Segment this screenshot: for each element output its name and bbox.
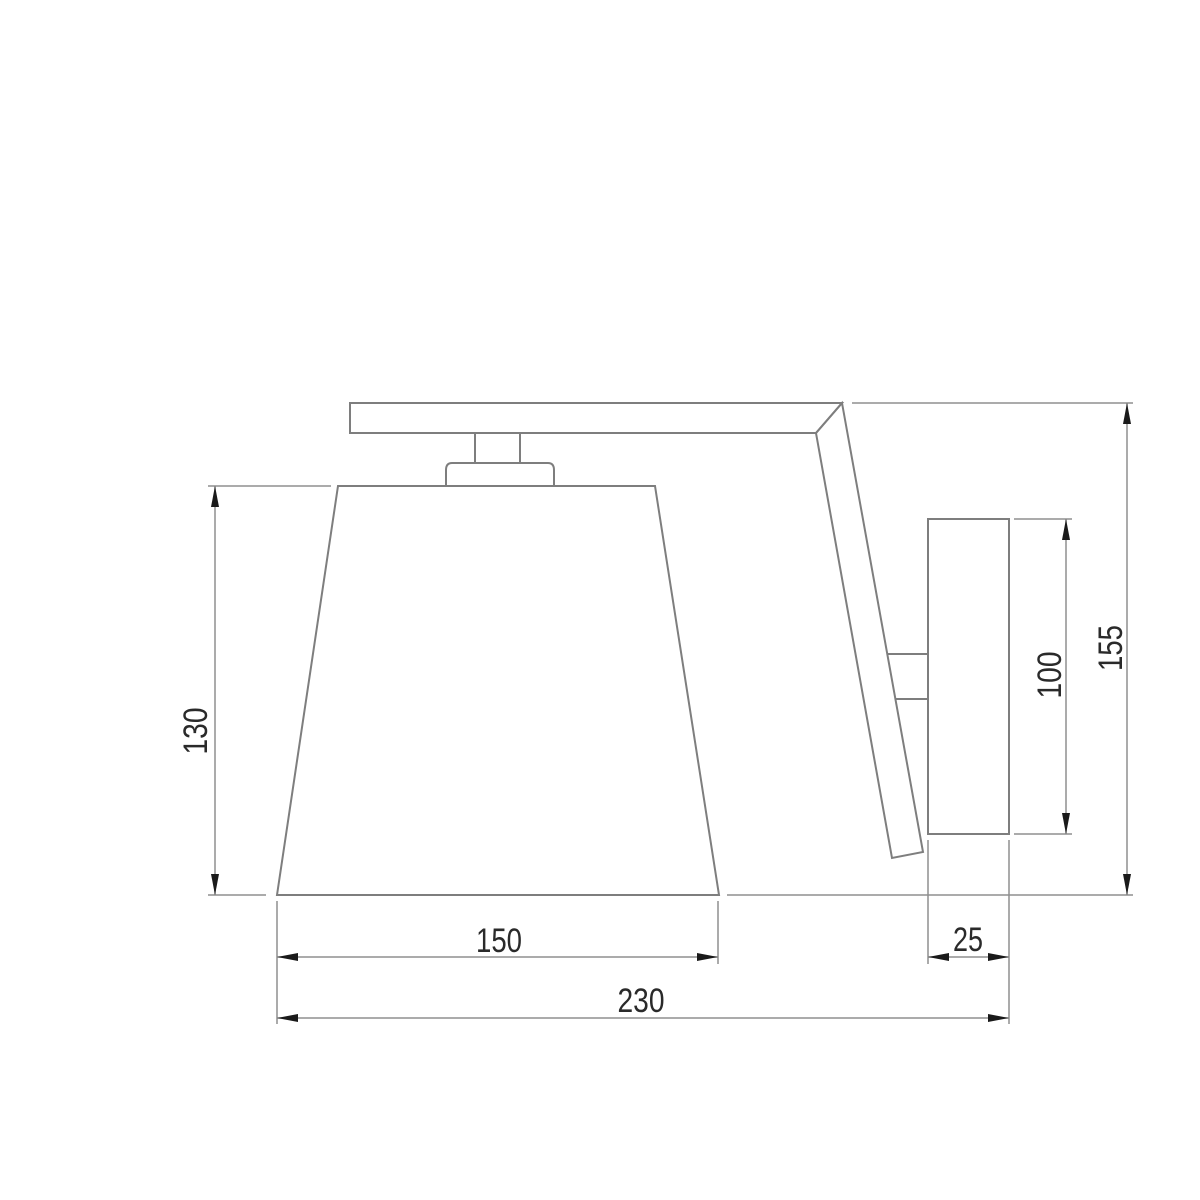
arrow-overall-height-bottom xyxy=(1123,874,1131,895)
drawing-canvas: 130 150 230 25 100 155 xyxy=(0,0,1200,1200)
extension-lines xyxy=(208,403,1133,1024)
sconce-outline-group xyxy=(277,403,1009,895)
dimension-labels-group: 130 150 230 25 100 155 xyxy=(177,625,1130,1020)
dim-label-shade-height: 130 xyxy=(177,708,215,755)
arrow-plate-height-top xyxy=(1062,519,1070,540)
arrow-shade-height-bottom xyxy=(211,874,219,895)
lampshade xyxy=(277,486,719,895)
dim-label-overall-width: 230 xyxy=(618,982,665,1020)
shade-fitting xyxy=(446,463,554,487)
support-arm xyxy=(816,403,923,858)
extension-lines-group xyxy=(208,403,1133,1024)
dim-label-plate-height: 100 xyxy=(1031,652,1069,699)
arrow-overall-height-top xyxy=(1123,403,1131,424)
arrow-plate-height-bottom xyxy=(1062,813,1070,834)
arrow-overall-width-right xyxy=(988,1014,1009,1022)
dim-label-shade-width: 150 xyxy=(476,922,522,960)
sconce-technical-drawing: 130 150 230 25 100 155 xyxy=(0,0,1200,1200)
arrow-shade-height-top xyxy=(211,486,219,507)
lamp-stem xyxy=(475,433,520,463)
arrow-plate-depth-right xyxy=(988,953,1009,961)
arm-plate-connector xyxy=(887,654,928,699)
mounting-bar xyxy=(350,403,842,433)
dimension-lines-group xyxy=(215,403,1127,1018)
arrow-overall-width-left xyxy=(277,1014,298,1022)
arrow-plate-depth-left xyxy=(928,953,949,961)
dim-label-overall-height: 155 xyxy=(1092,625,1130,671)
dim-label-plate-depth: 25 xyxy=(953,921,983,959)
arrow-shade-width-right xyxy=(697,953,718,961)
wall-plate xyxy=(928,519,1009,834)
arrow-shade-width-left xyxy=(277,953,298,961)
dimension-arrows-group xyxy=(211,403,1131,1022)
